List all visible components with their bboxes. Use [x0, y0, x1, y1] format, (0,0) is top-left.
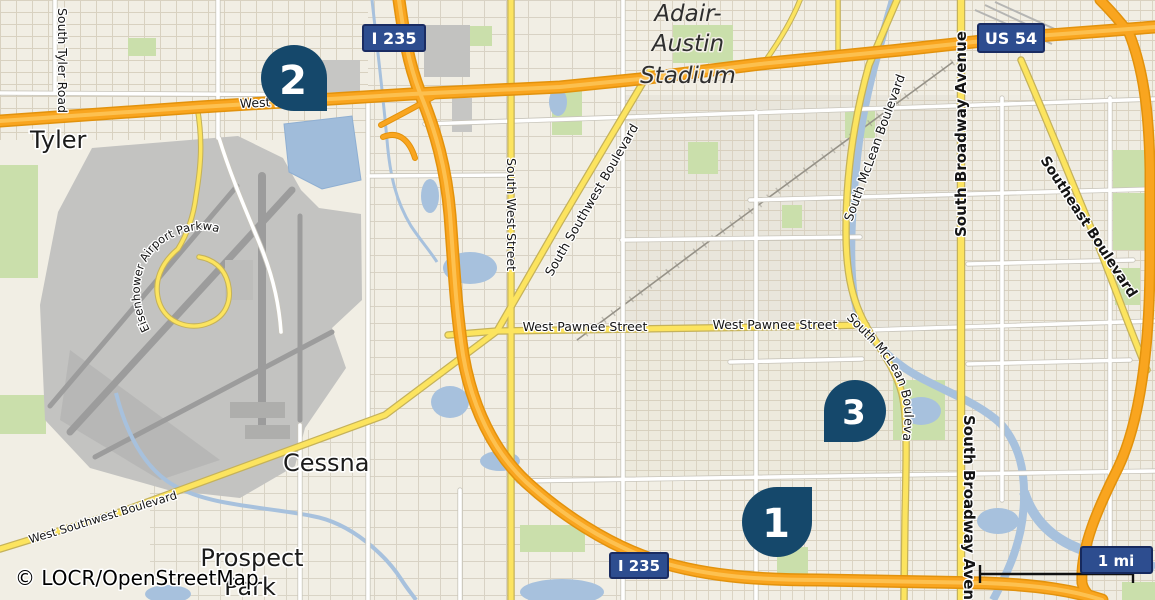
map-canvas[interactable]: South Tyler Road West Kellogg South West…: [0, 0, 1155, 600]
label-west-pawnee-street-east: West Pawnee Street: [713, 317, 838, 332]
marker-3-number: 3: [842, 393, 866, 433]
attribution-text: © LOCR/OpenStreetMap: [15, 566, 259, 590]
marker-2-number: 2: [279, 58, 307, 104]
marker-pin-3[interactable]: 3: [824, 380, 886, 442]
svg-text:I 235: I 235: [372, 29, 417, 48]
map-svg[interactable]: South Tyler Road West Kellogg South West…: [0, 0, 1155, 600]
place-cessna: Cessna: [283, 449, 369, 477]
label-south-tyler-road: South Tyler Road: [55, 8, 70, 113]
label-south-broadway-avenue-north: South Broadway Avenue: [952, 31, 970, 237]
scale-label: 1 mi: [1098, 552, 1134, 570]
marker-pin-2[interactable]: 2: [261, 45, 327, 111]
shield-us54: US 54: [978, 24, 1044, 52]
label-south-broadway-avenue-south: South Broadway Avenue: [960, 415, 978, 600]
label-south-west-street: South West Street: [504, 158, 519, 271]
place-tyler: Tyler: [29, 126, 87, 154]
shield-i235-bottom: I 235: [610, 553, 668, 578]
place-stadium-line3: Stadium: [640, 63, 736, 89]
svg-text:I 235: I 235: [618, 557, 660, 575]
svg-text:US 54: US 54: [985, 29, 1037, 48]
shield-i235-top: I 235: [363, 25, 425, 51]
place-stadium-line2: Austin: [650, 31, 724, 57]
label-west-pawnee-street-west: West Pawnee Street: [523, 319, 648, 334]
marker-1-number: 1: [762, 501, 790, 547]
place-stadium-line1: Adair-: [652, 1, 721, 27]
marker-pin-1[interactable]: 1: [742, 487, 812, 557]
